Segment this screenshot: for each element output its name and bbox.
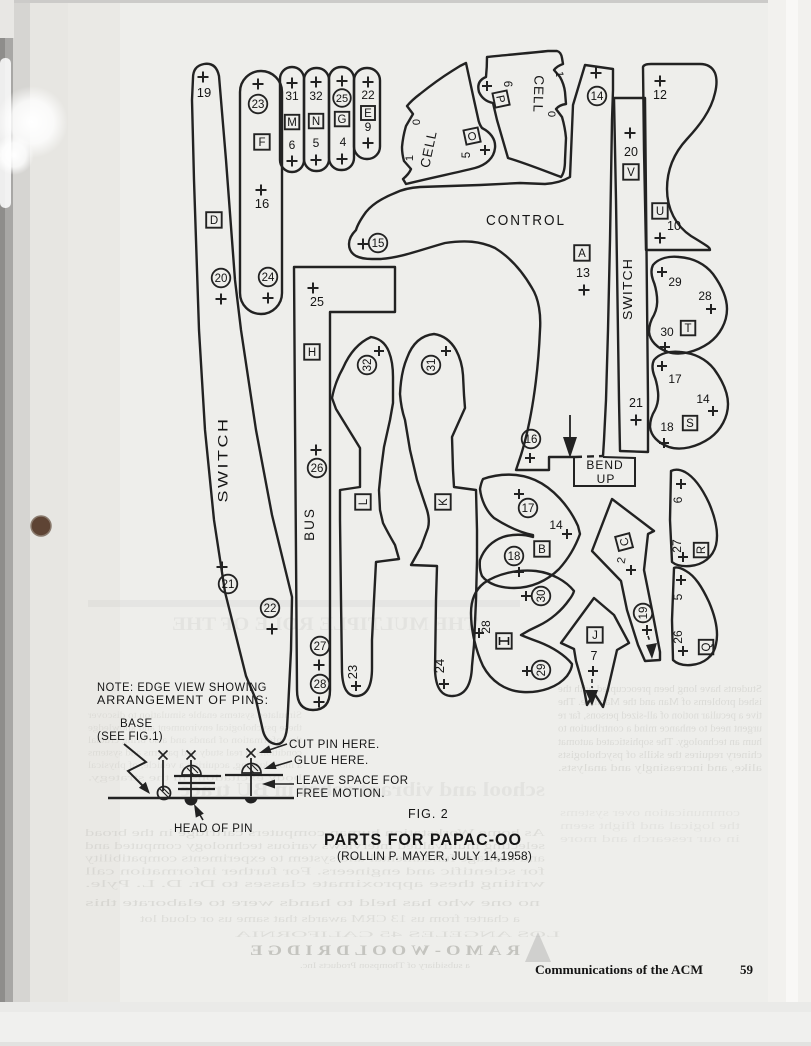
svg-text:urgent need to enhance mind a: urgent need to enhance mind a contributi… <box>558 724 762 735</box>
svg-text:6: 6 <box>289 138 296 152</box>
svg-text:27: 27 <box>670 539 684 553</box>
svg-text:59: 59 <box>740 962 754 977</box>
svg-text:RAMO-WOOLDRIDGE: RAMO-WOOLDRIDGE <box>245 943 520 959</box>
svg-text:chinery requires the skills of: chinery requires the skills of psycholog… <box>558 750 762 761</box>
svg-text:in our research and more: in our research and more <box>559 834 740 845</box>
svg-text:18: 18 <box>660 420 674 434</box>
svg-text:5: 5 <box>313 136 320 150</box>
svg-text:S: S <box>686 418 694 430</box>
svg-text:the logical and flight seem: the logical and flight seem <box>560 821 740 832</box>
svg-text:0: 0 <box>411 119 423 125</box>
svg-text:L: L <box>358 498 370 505</box>
svg-text:D: D <box>210 215 218 227</box>
svg-text:communication over systems: communication over systems <box>560 808 740 819</box>
svg-text:U: U <box>656 206 664 218</box>
svg-text:a charter from us 13 CRM award: a charter from us 13 CRM awards that sam… <box>140 914 520 925</box>
svg-text:14: 14 <box>591 91 604 103</box>
svg-text:31: 31 <box>285 89 299 103</box>
svg-text:28: 28 <box>698 289 712 303</box>
svg-text:HEAD OF PIN: HEAD OF PIN <box>174 823 253 835</box>
svg-text:19: 19 <box>197 85 211 100</box>
svg-text:no one who has held to hands w: no one who has held to hands were to ela… <box>85 897 540 909</box>
svg-text:CELL: CELL <box>530 75 546 113</box>
svg-text:21: 21 <box>222 579 235 591</box>
svg-text:16: 16 <box>525 434 538 446</box>
svg-text:32: 32 <box>362 359 374 372</box>
svg-text:5: 5 <box>671 593 685 600</box>
svg-text:B: B <box>538 544 546 556</box>
svg-text:6: 6 <box>501 81 513 87</box>
svg-text:24: 24 <box>432 659 447 673</box>
svg-text:F: F <box>258 137 265 149</box>
svg-text:BUS: BUS <box>302 507 317 541</box>
svg-text:17: 17 <box>522 503 535 515</box>
svg-text:J: J <box>592 630 598 642</box>
svg-text:CONTROL: CONTROL <box>486 212 566 229</box>
svg-text:T: T <box>684 323 691 335</box>
svg-text:Q: Q <box>701 642 713 651</box>
svg-text:GLUE HERE.: GLUE HERE. <box>294 755 369 767</box>
svg-text:BASE: BASE <box>120 718 153 730</box>
svg-text:LOS ANGELES 45 CALIFORNIA: LOS ANGELES 45 CALIFORNIA <box>234 930 560 939</box>
svg-text:29: 29 <box>536 664 548 677</box>
svg-text:NOTE: EDGE VIEW SHOWING: NOTE: EDGE VIEW SHOWING <box>97 682 267 694</box>
svg-text:V: V <box>627 167 635 179</box>
svg-text:7: 7 <box>591 649 598 663</box>
svg-text:writing these approximate clas: writing these approximate classes to Dr.… <box>85 879 545 890</box>
svg-text:27: 27 <box>314 641 327 653</box>
svg-text:14: 14 <box>549 518 563 532</box>
svg-text:M: M <box>287 117 297 129</box>
svg-text:Communications of the ACM: Communications of the ACM <box>535 962 703 977</box>
svg-text:CUT PIN HERE.: CUT PIN HERE. <box>289 739 380 751</box>
svg-text:FIG. 2: FIG. 2 <box>408 807 449 821</box>
svg-text:BEND: BEND <box>586 458 623 472</box>
svg-text:12: 12 <box>653 88 667 102</box>
svg-text:tive a peculiar notion of all-: tive a peculiar notion of all-sized pers… <box>558 710 762 721</box>
svg-text:18: 18 <box>508 551 521 563</box>
svg-text:E: E <box>364 108 372 120</box>
svg-text:SWITCH: SWITCH <box>620 258 635 320</box>
svg-text:LEAVE SPACE FOR: LEAVE SPACE FOR <box>296 775 409 787</box>
svg-text:30: 30 <box>536 590 548 603</box>
svg-text:22: 22 <box>264 603 277 615</box>
svg-text:THE MULTIPLE ROLE OF THE: THE MULTIPLE ROLE OF THE <box>172 614 478 635</box>
svg-text:ARRANGEMENT OF PINS:: ARRANGEMENT OF PINS: <box>97 695 269 707</box>
svg-text:10: 10 <box>667 219 681 233</box>
svg-text:9: 9 <box>365 120 372 134</box>
svg-text:6: 6 <box>671 496 685 503</box>
svg-text:hum an technology. The sophist: hum an technology. The sophisticated aut… <box>558 737 762 748</box>
svg-text:15: 15 <box>372 238 385 250</box>
svg-text:4: 4 <box>340 135 347 149</box>
svg-text:(ROLLIN P. MAYER, JULY 14,1958: (ROLLIN P. MAYER, JULY 14,1958) <box>337 851 532 863</box>
svg-text:14: 14 <box>696 392 710 406</box>
svg-text:19: 19 <box>638 607 650 620</box>
svg-text:20: 20 <box>215 273 228 285</box>
svg-text:26: 26 <box>311 463 324 475</box>
svg-text:17: 17 <box>668 372 682 386</box>
svg-text:21: 21 <box>629 396 643 410</box>
svg-text:UP: UP <box>597 472 616 486</box>
svg-text:13: 13 <box>576 266 590 280</box>
svg-text:1: 1 <box>553 71 565 77</box>
svg-text:0: 0 <box>545 111 557 117</box>
svg-text:a subsidiary of Thompson Produ: a subsidiary of Thompson Products Inc. <box>300 961 470 970</box>
svg-text:N: N <box>312 116 320 128</box>
svg-text:22: 22 <box>361 88 375 102</box>
svg-text:31: 31 <box>426 359 438 372</box>
svg-text:25: 25 <box>336 93 348 105</box>
svg-text:29: 29 <box>668 275 682 289</box>
svg-text:H: H <box>308 347 316 359</box>
svg-text:28: 28 <box>314 679 327 691</box>
svg-text:32: 32 <box>309 89 323 103</box>
svg-text:G: G <box>338 114 347 126</box>
svg-text:28: 28 <box>479 620 493 634</box>
svg-text:R: R <box>696 546 708 554</box>
svg-text:23: 23 <box>345 665 360 679</box>
svg-text:1: 1 <box>404 155 416 161</box>
svg-text:PARTS FOR PAPAC-OO: PARTS FOR PAPAC-OO <box>324 831 522 849</box>
svg-text:FREE MOTION.: FREE MOTION. <box>296 788 385 800</box>
svg-text:SWITCH: SWITCH <box>215 417 231 503</box>
svg-text:26: 26 <box>671 630 685 644</box>
svg-text:16: 16 <box>255 196 269 211</box>
svg-text:5: 5 <box>461 152 473 158</box>
svg-text:alike, and increasingly and an: alike, and increasingly and analysts. <box>558 763 762 774</box>
svg-text:20: 20 <box>624 145 638 159</box>
svg-text:25: 25 <box>310 295 324 309</box>
svg-text:(SEE FIG.1): (SEE FIG.1) <box>97 731 163 743</box>
svg-text:K: K <box>438 498 450 506</box>
svg-text:23: 23 <box>252 99 265 111</box>
svg-text:A: A <box>578 248 586 260</box>
svg-text:24: 24 <box>262 272 275 284</box>
svg-text:for scientific and engineers.: for scientific and engineers. For furthe… <box>85 866 545 877</box>
svg-text:30: 30 <box>660 325 674 339</box>
